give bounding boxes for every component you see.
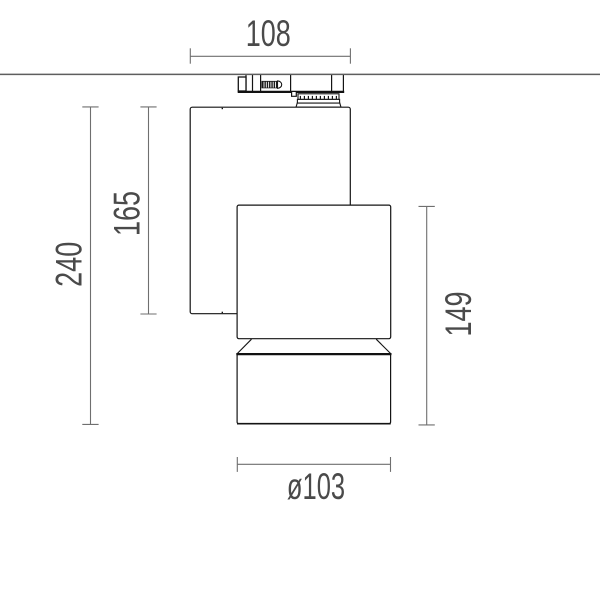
- svg-text:240: 240: [48, 242, 89, 287]
- svg-text:149: 149: [438, 291, 479, 336]
- svg-text:ø103: ø103: [287, 465, 345, 507]
- svg-text:108: 108: [246, 13, 291, 54]
- svg-text:165: 165: [107, 191, 148, 236]
